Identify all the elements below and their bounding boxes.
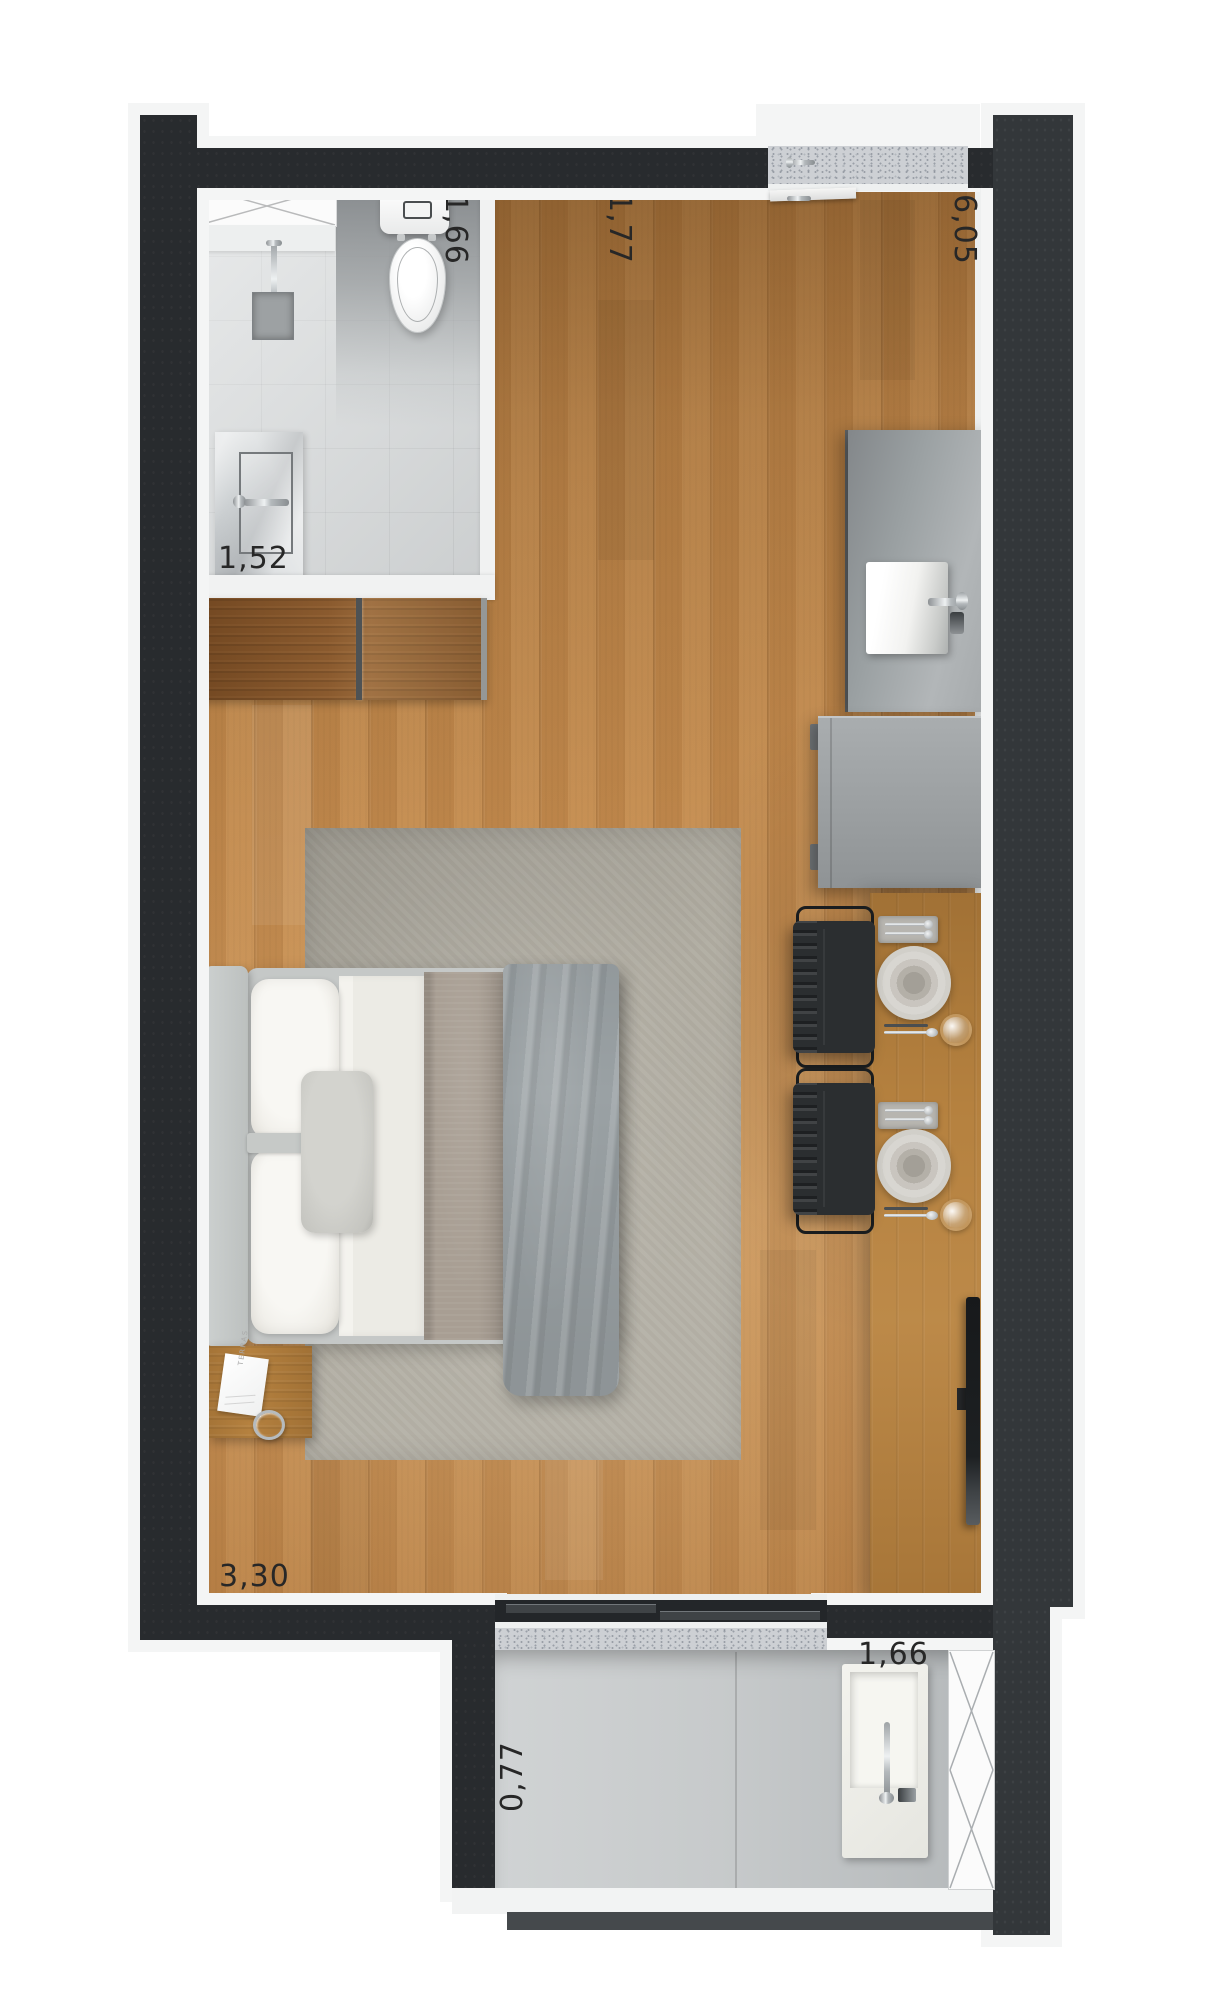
shower-ledge bbox=[197, 225, 335, 251]
kitchen-faucet-head-icon bbox=[956, 592, 968, 610]
glass bbox=[940, 1199, 972, 1231]
floor-plan: TERRAS 1,66 1,77 6,05 1,52 3,30 bbox=[0, 0, 1220, 2000]
glass bbox=[940, 1014, 972, 1046]
dim-balcony-depth: 0,77 bbox=[498, 1741, 528, 1812]
dim-vanity-width: 1,52 bbox=[218, 544, 289, 574]
shower-holder-icon bbox=[266, 240, 282, 246]
dim-hall-width: 1,77 bbox=[604, 193, 634, 264]
balcony-edge bbox=[452, 1888, 993, 1914]
dim-bathroom-width: 1,66 bbox=[440, 194, 470, 265]
cutlery-tray bbox=[878, 1102, 938, 1129]
plate bbox=[877, 1129, 951, 1203]
door-handle-icon bbox=[787, 196, 811, 201]
dim-room-width: 3,30 bbox=[219, 1562, 290, 1592]
wall-bottom-right bbox=[823, 1605, 993, 1638]
toilet-hinge bbox=[397, 234, 405, 241]
cutlery bbox=[884, 1022, 940, 1038]
laundry-faucet-knob-icon bbox=[879, 1792, 894, 1804]
laundry-faucet-icon bbox=[884, 1722, 890, 1798]
wall-left bbox=[140, 115, 197, 1640]
sliding-door-leaf bbox=[506, 1604, 656, 1613]
toilet-flush-button bbox=[403, 201, 432, 219]
kitchen-mixer-handle bbox=[950, 612, 964, 634]
duct-shaft bbox=[948, 1650, 995, 1890]
kitchen-sink bbox=[866, 562, 948, 654]
laundry-mixer bbox=[898, 1788, 916, 1802]
accent-pillow bbox=[301, 1071, 373, 1233]
balcony-railing bbox=[507, 1912, 993, 1930]
refrigerator bbox=[818, 716, 985, 888]
dim-unit-length: 6,05 bbox=[949, 194, 979, 265]
bathroom-bottom-wall bbox=[197, 575, 495, 600]
nightstand-card: TERRAS bbox=[217, 1353, 269, 1417]
wall-top-stub bbox=[968, 148, 993, 188]
duvet bbox=[503, 964, 619, 1396]
plate bbox=[877, 946, 951, 1020]
wall-top bbox=[140, 148, 768, 188]
blanket bbox=[424, 972, 504, 1340]
cutlery-tray bbox=[878, 916, 938, 943]
dining-chair bbox=[793, 1083, 875, 1215]
balcony-threshold bbox=[495, 1628, 827, 1652]
door-handle-knob-icon bbox=[786, 157, 793, 168]
shaft-x-icon bbox=[949, 1651, 994, 1889]
entry-threshold bbox=[768, 146, 968, 184]
toilet-seat-line bbox=[397, 247, 438, 322]
toilet-hinge bbox=[428, 234, 436, 241]
vanity-faucet-icon bbox=[244, 499, 289, 506]
bathroom-right-wall bbox=[480, 140, 495, 600]
cutlery bbox=[884, 1205, 940, 1221]
wall-bottom-left bbox=[140, 1605, 495, 1640]
fridge-door-seam bbox=[830, 718, 832, 888]
balcony-pillar bbox=[452, 1640, 495, 1890]
ring-icon bbox=[253, 1410, 285, 1440]
sliding-door-leaf bbox=[660, 1611, 820, 1620]
sliding-door-track bbox=[495, 1600, 827, 1624]
tv bbox=[966, 1297, 980, 1525]
balcony-floor-joint bbox=[735, 1652, 737, 1890]
wall-right bbox=[993, 115, 1073, 1607]
headboard bbox=[204, 966, 248, 1346]
dining-chair bbox=[793, 921, 875, 1053]
wardrobe-right-door bbox=[362, 598, 487, 700]
wall-right-lower bbox=[993, 1607, 1050, 1935]
shower-drain-niche bbox=[252, 292, 294, 340]
dim-balcony-width: 1,66 bbox=[858, 1640, 929, 1670]
